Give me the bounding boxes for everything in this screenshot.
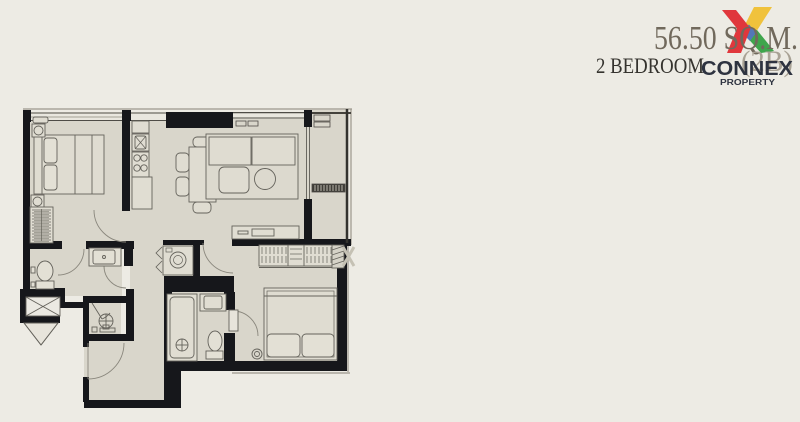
svg-text:PROPERTY: PROPERTY (720, 78, 776, 87)
svg-text:CONNEX: CONNEX (701, 58, 794, 80)
svg-text:2 BEDROOM: 2 BEDROOM (596, 53, 704, 78)
